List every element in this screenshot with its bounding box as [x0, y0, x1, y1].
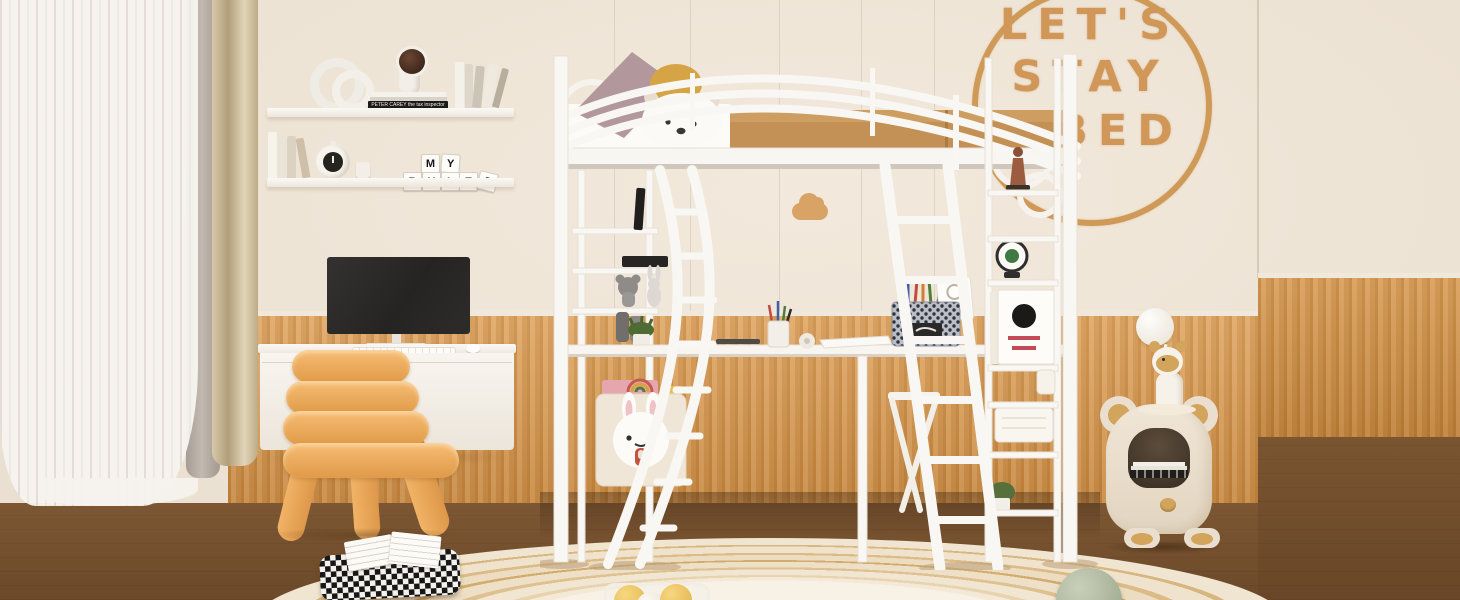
- bear-table-book-black: [1130, 470, 1188, 478]
- shelf-book: [268, 132, 277, 178]
- wainscot-slats-right: [1258, 278, 1460, 438]
- wall-shelf-lower: [267, 178, 514, 187]
- bear-table-foot-right-pad: [1191, 533, 1213, 545]
- portrait-book: [990, 290, 1054, 364]
- bear-table-opening: [1128, 428, 1190, 488]
- pencil-cup: [768, 301, 791, 347]
- ring-ornament: [997, 241, 1027, 278]
- curtain-champagne: [212, 0, 258, 466]
- open-book-right-page: [388, 531, 441, 568]
- wood-floor-right: [1258, 437, 1460, 600]
- curtain-sheer: [0, 0, 198, 506]
- letter-block: Y: [440, 153, 460, 173]
- black-speaker-box: [622, 256, 668, 267]
- left-shelf-tower: [572, 170, 668, 562]
- letter-block-text: Y: [446, 157, 454, 169]
- small-pot: [356, 162, 370, 178]
- white-drawer-box: [995, 408, 1053, 442]
- chair-tube-2: [286, 381, 419, 414]
- phone: [716, 339, 760, 344]
- gray-jar: [616, 312, 629, 342]
- shelf-book: [455, 62, 464, 108]
- wall-shelf-upper: [267, 108, 514, 117]
- koala-figurine: [616, 275, 641, 308]
- alarm-clock-button: [330, 141, 336, 146]
- shelf-book: [278, 134, 286, 178]
- astronaut-helmet: [396, 46, 428, 77]
- letter-block: M: [421, 154, 440, 173]
- chair-seat-tube: [283, 443, 459, 478]
- alarm-clock-hand: [332, 156, 334, 163]
- shelf-book: [287, 136, 296, 178]
- bedding: [558, 52, 1077, 154]
- bed-foot-shadows: [540, 559, 1098, 570]
- mouse: [466, 344, 480, 353]
- bear-table-nose: [1160, 498, 1176, 512]
- bear-figurine-eye: [1162, 358, 1165, 361]
- loft-bed: [540, 40, 1100, 570]
- chair-tube-1: [292, 350, 410, 383]
- bear-table-top-disc: [1138, 404, 1196, 415]
- curtain-sheer-hem: [40, 478, 198, 506]
- shelf-book: [296, 138, 311, 179]
- bear-table-foot-left-pad: [1131, 533, 1153, 545]
- monitor-screen: [327, 257, 470, 334]
- chair-tube-3: [283, 411, 429, 445]
- wall-corner-seam: [1257, 0, 1259, 278]
- white-pot: [1037, 370, 1055, 394]
- tape-roll-hole: [804, 338, 810, 344]
- bedroom-scene: LET'S STAY BED PETER CAREY the tax inspe…: [0, 0, 1460, 600]
- bear-figurine-face: [1156, 355, 1179, 372]
- tablet: [634, 188, 646, 231]
- letter-block-text: M: [426, 158, 435, 170]
